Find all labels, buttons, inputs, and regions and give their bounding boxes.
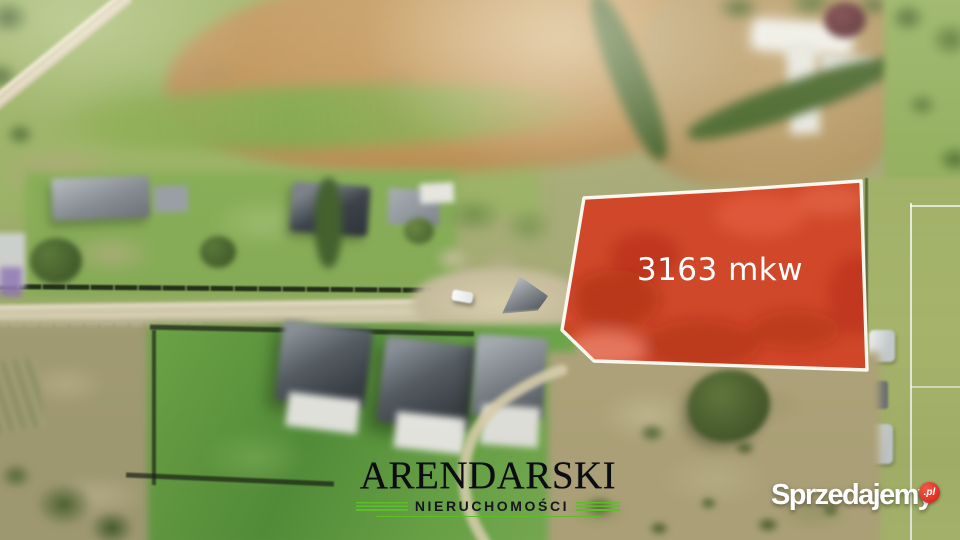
agency-subtitle-row: NIERUCHOMOŚCI xyxy=(352,498,624,515)
green-lines-left-icon xyxy=(356,502,408,511)
agency-name: ARENDARSKI xyxy=(352,456,624,497)
plot-area-label: 3163 mkw xyxy=(615,252,825,289)
pl-badge-icon: .pl xyxy=(919,482,940,503)
green-underline xyxy=(376,516,601,518)
site-wordmark: Sprzedajemy xyxy=(771,479,932,511)
site-watermark: Sprzedajemy .pl xyxy=(771,480,951,530)
land-listing-photo: 3163 mkw ARENDARSKI NIERUCHOMOŚCI Sprzed… xyxy=(0,0,960,540)
agency-subtitle: NIERUCHOMOŚCI xyxy=(415,498,569,515)
agency-logo: ARENDARSKI NIERUCHOMOŚCI xyxy=(352,456,624,517)
green-lines-right-icon xyxy=(576,502,620,511)
